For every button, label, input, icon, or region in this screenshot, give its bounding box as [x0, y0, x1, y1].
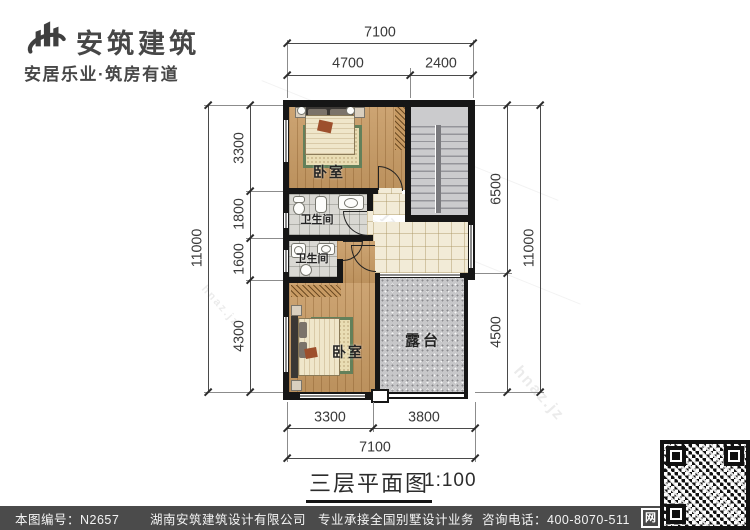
room-label-bedroom-top: 卧室 — [313, 162, 345, 182]
wall — [411, 215, 468, 222]
qr-finder — [724, 446, 744, 466]
nightstand — [291, 380, 302, 391]
qr-finder — [666, 504, 686, 524]
terrace-parapet — [375, 273, 380, 398]
pillow — [299, 322, 307, 338]
window — [283, 213, 289, 228]
sink-basin — [344, 198, 358, 208]
dim-value: 3300 — [314, 409, 346, 426]
wall — [283, 100, 475, 107]
plan-caption: 三层平面图 — [306, 466, 432, 503]
dim-value: 3300 — [231, 132, 248, 164]
dim-value: 7100 — [364, 24, 396, 41]
phone-number: 咨询电话：400-8070-511 — [482, 506, 630, 530]
dim-value: 11000 — [189, 229, 206, 268]
wall — [283, 188, 378, 194]
wall — [405, 100, 411, 222]
hall-floor — [373, 194, 405, 215]
qr-code — [660, 440, 750, 530]
room-label-terrace: 露台 — [405, 330, 441, 351]
nightstand — [291, 305, 302, 316]
web-badge: 网 — [641, 508, 660, 528]
window — [283, 120, 289, 162]
dim-value: 6500 — [488, 173, 505, 205]
door-leaf — [351, 245, 375, 246]
door-leaf — [343, 211, 367, 212]
bed-throw — [304, 347, 318, 359]
nightstand — [354, 107, 365, 118]
terrace-window — [380, 273, 460, 278]
dim-value: 7100 — [359, 439, 391, 456]
dim-value: 4300 — [231, 320, 248, 352]
dim-value: 4500 — [488, 316, 505, 348]
dim-value: 3800 — [408, 409, 440, 426]
room-label-bath-bottom: 卫生间 — [296, 250, 329, 266]
stair-rail — [435, 125, 441, 213]
terrace-parapet — [464, 278, 468, 399]
window — [468, 225, 475, 268]
window — [283, 317, 289, 372]
closet-hatch — [395, 107, 405, 150]
company-name: 湖南安筑建筑设计有限公司 — [150, 506, 306, 530]
wall — [460, 273, 468, 278]
dim-value: 4700 — [332, 55, 364, 72]
terrace-threshold — [371, 389, 389, 403]
dim-value: 1800 — [231, 198, 248, 230]
door-leaf — [378, 166, 379, 190]
window — [283, 250, 289, 272]
hall-floor — [373, 222, 468, 273]
service-line: 专业承接全国别墅设计业务 — [318, 506, 474, 530]
room-label-bath-top: 卫生间 — [301, 211, 334, 227]
qr-finder — [666, 446, 686, 466]
dim-value: 1600 — [231, 243, 248, 275]
sheet-number: 本图编号：N2657 — [15, 506, 119, 530]
dim-value: 11000 — [521, 229, 538, 268]
door-leaf — [343, 241, 362, 242]
plan-scale: 1:100 — [424, 470, 477, 492]
wardrobe-hatch — [291, 285, 341, 297]
bed-headboard — [291, 316, 298, 378]
wall-sconce — [297, 106, 306, 115]
wall — [367, 194, 373, 211]
wall-sconce — [346, 106, 355, 115]
wall — [283, 277, 343, 283]
floorplan-sheet: 安筑建筑 安居乐业·筑房有道 hnaz.jz hnaz.jz hnaz.jz 安… — [0, 0, 750, 530]
room-label-bedroom-bottom: 卧室 — [332, 342, 364, 362]
dim-value: 2400 — [425, 55, 457, 72]
window — [300, 393, 365, 399]
